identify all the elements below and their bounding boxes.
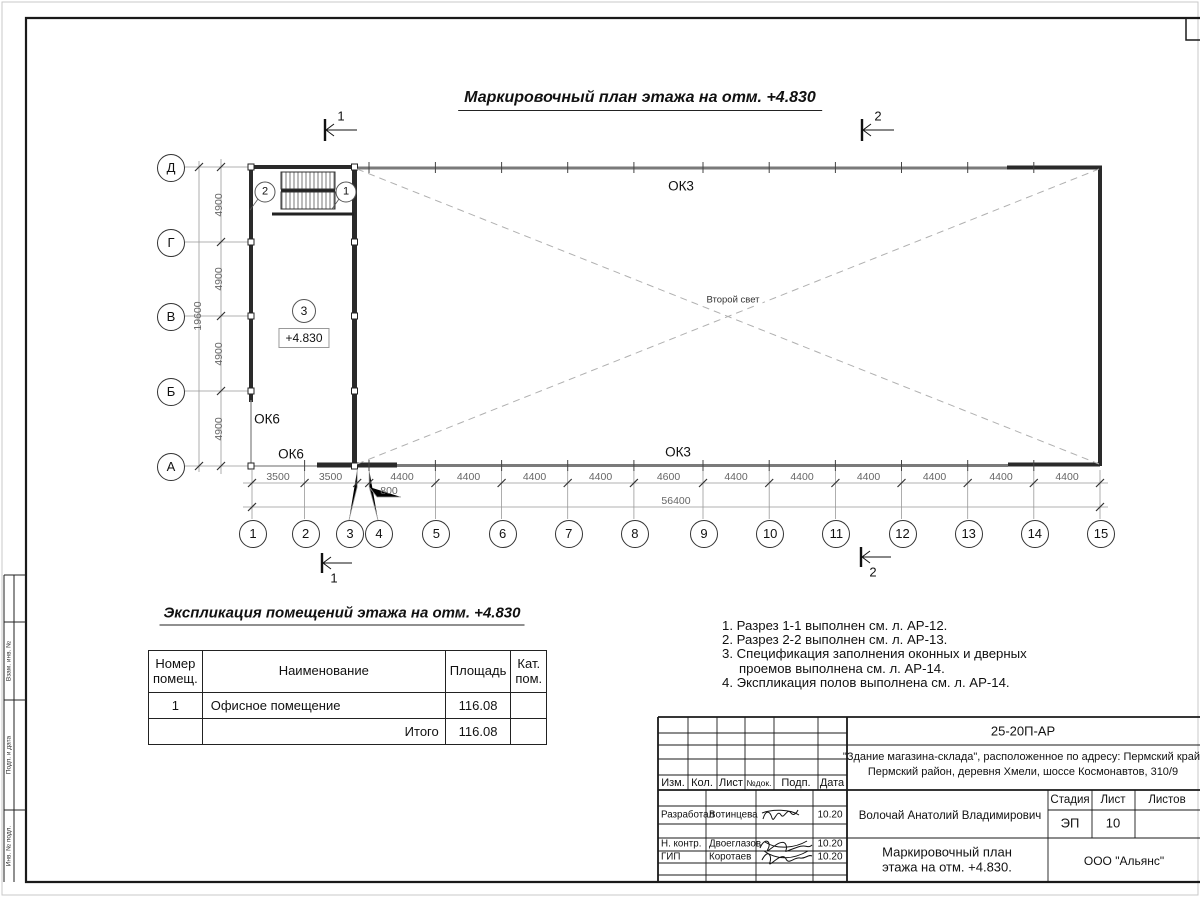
axis-bubble-col-5: 5 bbox=[422, 520, 450, 548]
h-dim-2: 4400 bbox=[390, 471, 413, 483]
h-dim-0: 3500 bbox=[266, 471, 289, 483]
approver-name: Волочай Анатолий Владимирович bbox=[859, 810, 1042, 822]
h-dim-4: 4400 bbox=[523, 471, 546, 483]
section-2-label-bottom: 2 bbox=[869, 565, 876, 580]
h-dim-1: 3500 bbox=[319, 471, 342, 483]
h-dim-7: 4400 bbox=[724, 471, 747, 483]
door-tag-1: 1 bbox=[336, 182, 357, 203]
v-dim-1: 4900 bbox=[213, 267, 225, 290]
section-2-label-top: 2 bbox=[874, 109, 881, 124]
company-name: ООО "Альянс" bbox=[1084, 854, 1164, 868]
axis-bubble-col-6: 6 bbox=[489, 520, 517, 548]
room-cat-cell bbox=[511, 693, 547, 719]
h-dim-10: 4400 bbox=[923, 471, 946, 483]
drawing-title-line1: Маркировочный план bbox=[882, 845, 1012, 860]
explication-heading: Экспликация помещений этажа на отм. +4.8… bbox=[160, 605, 525, 626]
window-mark-ok6-left: ОК6 bbox=[254, 412, 280, 427]
axis-bubble-row-Б: Б bbox=[157, 378, 185, 406]
project-address-line1: "Здание магазина-склада", расположенное … bbox=[843, 751, 1200, 763]
stage-value: ЭП bbox=[1061, 816, 1080, 831]
date-developed: 10.20 bbox=[817, 810, 842, 821]
project-address-line2: Пермский район, деревня Хмели, шоссе Кос… bbox=[868, 766, 1178, 778]
col-header-area: Площадь bbox=[445, 651, 511, 693]
header-izm: Изм. bbox=[661, 777, 685, 789]
axis-bubble-col-12: 12 bbox=[889, 520, 917, 548]
h-dim-11: 4400 bbox=[989, 471, 1012, 483]
drawing-sheet: Маркировочный план этажа на отм. +4.830 … bbox=[0, 0, 1200, 900]
explication-table: Номер помещ. Наименование Площадь Кат. п… bbox=[148, 650, 547, 745]
window-mark-ok6-bottom: ОК6 bbox=[278, 447, 304, 462]
header-kol: Кол. bbox=[691, 777, 713, 789]
doc-number: 25-20П-АР bbox=[991, 724, 1055, 739]
axis-bubble-col-11: 11 bbox=[822, 520, 850, 548]
axis-bubble-row-А: А bbox=[157, 453, 185, 481]
axis-bubble-col-2: 2 bbox=[292, 520, 320, 548]
h-dim-12: 4400 bbox=[1055, 471, 1078, 483]
role-developed: Разработал bbox=[661, 810, 714, 821]
name-gip: Коротаев bbox=[709, 852, 751, 863]
h-dim-800: 800 bbox=[380, 485, 398, 497]
col-header-cat: Кат. пом. bbox=[511, 651, 547, 693]
note-1: 1. Разрез 1-1 выполнен см. л. АР-12. bbox=[722, 619, 1062, 633]
col-header-name: Наименование bbox=[202, 651, 445, 693]
date-gip: 10.20 bbox=[817, 852, 842, 863]
axis-bubble-col-10: 10 bbox=[756, 520, 784, 548]
notes-list: 1. Разрез 1-1 выполнен см. л. АР-12. 2. … bbox=[722, 619, 1062, 690]
v-total-dim: 19600 bbox=[192, 301, 204, 330]
margin-label-podp: Подп. и дата bbox=[6, 736, 13, 774]
header-list: Лист bbox=[719, 777, 743, 789]
header-data: Дата bbox=[820, 777, 844, 789]
window-mark-ok3-top: ОК3 bbox=[668, 179, 694, 194]
total-empty-cell bbox=[149, 719, 203, 745]
note-3: 3. Спецификация заполнения оконных и две… bbox=[722, 647, 1062, 675]
drawing-title-line2: этажа на отм. +4.830. bbox=[882, 860, 1012, 875]
axis-bubble-col-13: 13 bbox=[955, 520, 983, 548]
axis-bubble-col-15: 15 bbox=[1087, 520, 1115, 548]
axis-bubble-col-9: 9 bbox=[690, 520, 718, 548]
header-doc: №док. bbox=[747, 778, 772, 788]
h-total-dim: 56400 bbox=[661, 495, 690, 507]
date-ncontrol: 10.20 bbox=[817, 839, 842, 850]
total-label-cell: Итого bbox=[202, 719, 445, 745]
col-header-num: Номер помещ. bbox=[149, 651, 203, 693]
axis-bubble-row-Д: Д bbox=[157, 154, 185, 182]
axis-bubble-col-8: 8 bbox=[621, 520, 649, 548]
axis-bubble-col-14: 14 bbox=[1021, 520, 1049, 548]
room-area-cell: 116.08 bbox=[445, 693, 511, 719]
window-mark-ok3-bottom: ОК3 bbox=[665, 445, 691, 460]
axis-bubble-col-3: 3 bbox=[336, 520, 364, 548]
v-dim-0: 4900 bbox=[213, 193, 225, 216]
header-podp: Подп. bbox=[781, 777, 810, 789]
axis-bubble-col-7: 7 bbox=[555, 520, 583, 548]
sheets-label: Листов bbox=[1148, 794, 1185, 806]
h-dim-5: 4400 bbox=[589, 471, 612, 483]
role-ncontrol: Н. контр. bbox=[661, 839, 701, 850]
margin-label-inv: Инв. № подл. bbox=[6, 826, 13, 867]
h-dim-8: 4400 bbox=[790, 471, 813, 483]
level-mark: +4.830 bbox=[278, 328, 329, 348]
h-dim-3: 4400 bbox=[457, 471, 480, 483]
h-dim-9: 4400 bbox=[857, 471, 880, 483]
axis-bubble-row-В: В bbox=[157, 303, 185, 331]
h-dim-6: 4600 bbox=[657, 471, 680, 483]
axis-bubble-row-Г: Г bbox=[157, 229, 185, 257]
room-tag: 3 bbox=[292, 299, 316, 323]
axis-bubble-col-1: 1 bbox=[239, 520, 267, 548]
total-area-cell: 116.08 bbox=[445, 719, 511, 745]
name-ncontrol: Двоеглазов bbox=[709, 839, 761, 850]
page-title: Маркировочный план этажа на отм. +4.830 bbox=[458, 89, 822, 111]
stage-label: Стадия bbox=[1050, 794, 1089, 806]
margin-label-vzam: Взам. инв. № bbox=[6, 641, 13, 681]
role-gip: ГИП bbox=[661, 852, 680, 863]
section-1-label-top: 1 bbox=[337, 109, 344, 124]
sheet-number: 10 bbox=[1106, 816, 1120, 831]
note-2: 2. Разрез 2-2 выполнен см. л. АР-13. bbox=[722, 633, 1062, 647]
door-tag-2: 2 bbox=[255, 182, 276, 203]
note-4: 4. Экспликация полов выполнена см. л. АР… bbox=[722, 676, 1062, 690]
v-dim-3: 4900 bbox=[213, 417, 225, 440]
text-layer: Маркировочный план этажа на отм. +4.830 … bbox=[0, 0, 1200, 900]
name-developed: Вотинцева bbox=[709, 810, 758, 821]
sheet-label: Лист bbox=[1101, 794, 1126, 806]
room-number-cell: 1 bbox=[149, 693, 203, 719]
v-dim-2: 4900 bbox=[213, 342, 225, 365]
second-light-label: Второй свет bbox=[703, 295, 762, 306]
axis-bubble-col-4: 4 bbox=[365, 520, 393, 548]
section-1-label-bottom: 1 bbox=[330, 571, 337, 586]
total-cat-cell bbox=[511, 719, 547, 745]
room-name-cell: Офисное помещение bbox=[202, 693, 445, 719]
